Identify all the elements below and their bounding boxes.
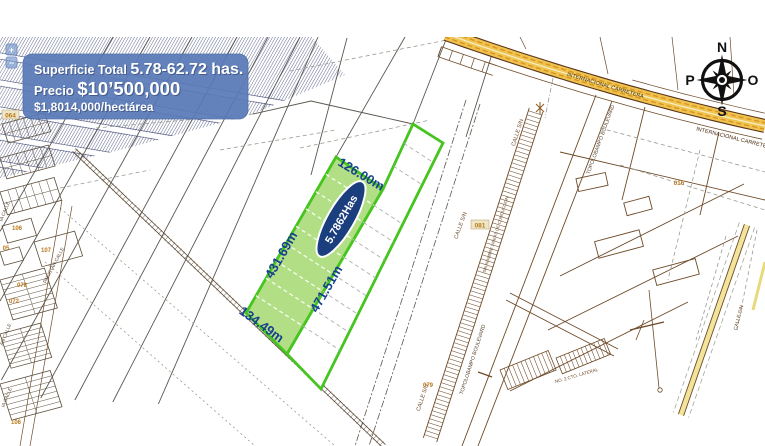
svg-text:081: 081 [475, 223, 486, 230]
svg-text:−: − [9, 58, 14, 68]
svg-text:N: N [717, 39, 727, 55]
svg-text:079: 079 [423, 383, 434, 389]
svg-text:+: + [9, 45, 14, 55]
svg-text:106: 106 [11, 420, 22, 426]
svg-text:016: 016 [674, 180, 685, 187]
svg-text:064: 064 [5, 113, 16, 120]
svg-text:072: 072 [9, 299, 20, 305]
svg-text:107: 107 [41, 248, 52, 254]
svg-text:$1,8014,000/hectárea: $1,8014,000/hectárea [34, 100, 154, 114]
svg-text:078: 078 [17, 283, 28, 289]
svg-text:106: 106 [12, 226, 23, 232]
svg-text:Superficie Total 5.78-62.72 ha: Superficie Total 5.78-62.72 has. [34, 61, 243, 78]
svg-text:P: P [685, 72, 694, 88]
svg-text:05: 05 [3, 246, 10, 252]
svg-text:S: S [717, 103, 726, 119]
svg-text:O: O [748, 72, 759, 88]
